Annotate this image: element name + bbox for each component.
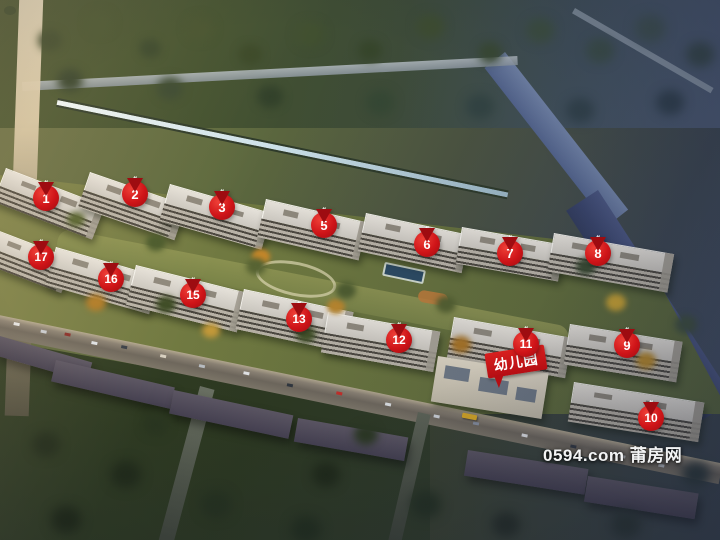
marker-pin-tip [619,329,635,343]
marker-pin-tip [185,279,201,293]
marker-pin-tip [291,303,307,317]
marker-pin-tip [316,209,332,223]
marker-pin-tip [38,182,54,196]
marker-pin-tip [214,191,230,205]
marker-pin-tip [643,402,659,416]
marker-pin-tip [518,328,534,342]
marker-pin-tip [103,263,119,277]
watermark: 0594.com 莆房网 [543,441,682,466]
aerial-masterplan-render: 1#2#3#5#6#7#8#9#10#11#12#13#15#16#17# 幼儿… [0,0,720,540]
kindergarten-label-pointer [494,374,506,388]
marker-pin-tip [127,178,143,192]
marker-pin-tip [391,324,407,338]
marker-pin-tip [33,241,49,255]
marker-pin-tip [502,237,518,251]
marker-pin-tip [419,228,435,242]
marker-pin-tip [590,237,606,251]
